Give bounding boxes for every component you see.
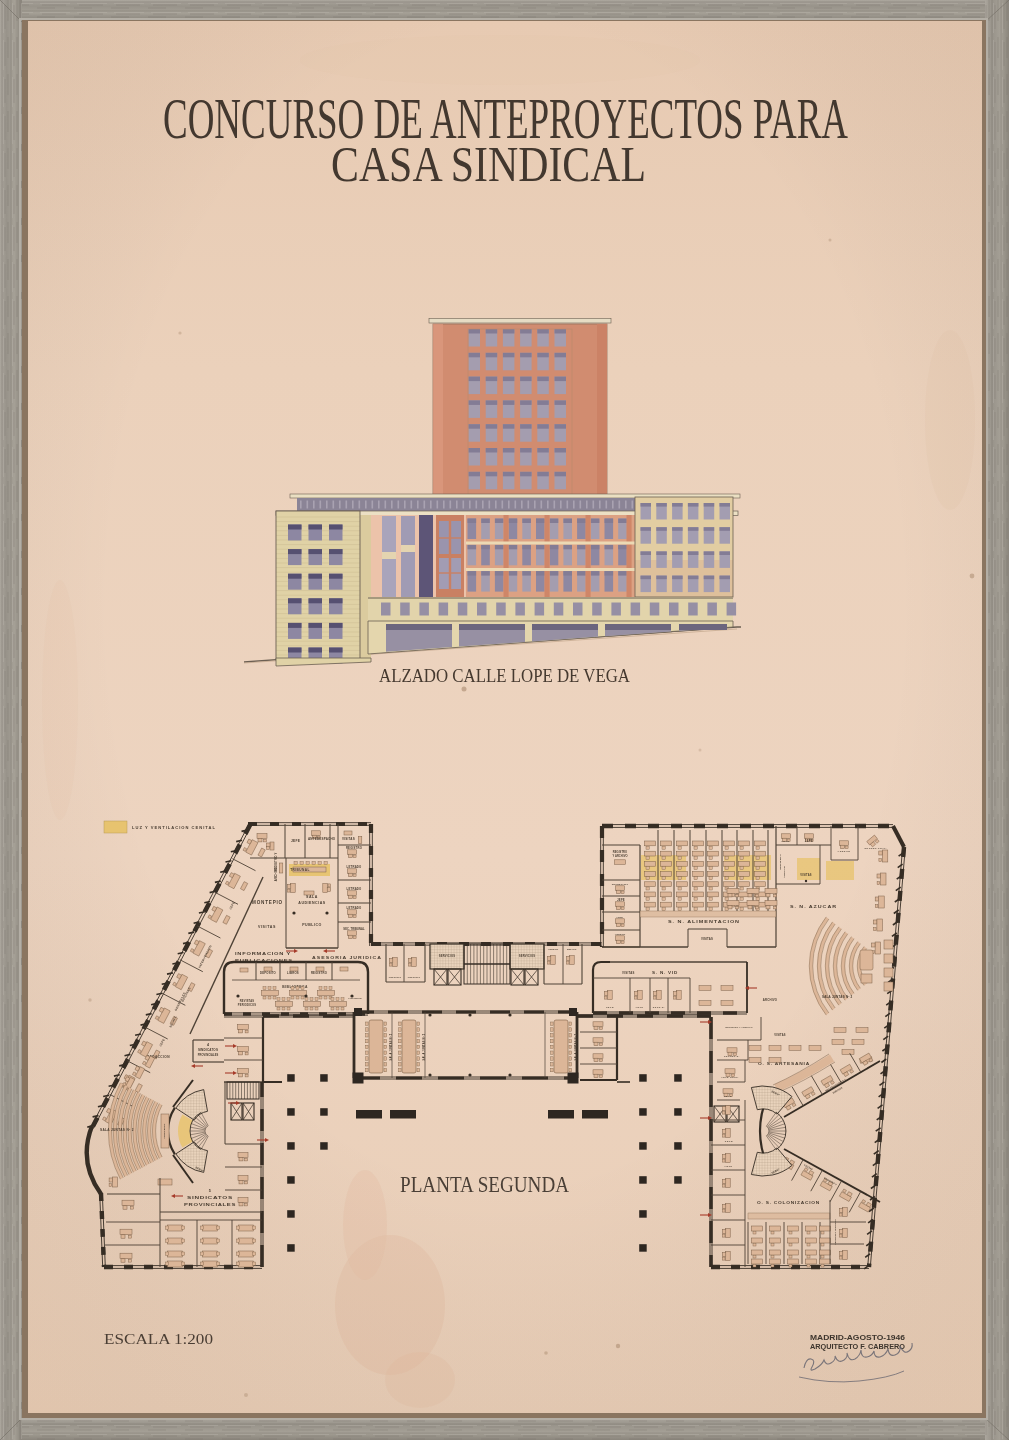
svg-text:AUDIENCIAS: AUDIENCIAS: [298, 901, 325, 905]
svg-text:LETRADO: LETRADO: [389, 976, 401, 979]
svg-text:ARCHIVO: ARCHIVO: [783, 866, 786, 878]
svg-text:4: 4: [207, 1043, 209, 1047]
svg-text:ANTE-: ANTE-: [635, 1006, 644, 1008]
svg-text:LETRADO: LETRADO: [408, 976, 420, 979]
svg-text:JEFE: JEFE: [725, 1140, 733, 1143]
svg-text:ANTE-: ANTE-: [724, 1165, 734, 1167]
svg-text:PLANTA SEGUNDA: PLANTA SEGUNDA: [400, 1172, 569, 1197]
svg-text:LETRADO: LETRADO: [347, 906, 363, 910]
svg-text:REGISTRO Y ARCHIVO: REGISTRO Y ARCHIVO: [725, 1026, 752, 1028]
svg-text:MADRID-AGOSTO-1946: MADRID-AGOSTO-1946: [810, 1334, 905, 1341]
svg-text:SECR.D.: SECR.D.: [653, 1006, 665, 1008]
svg-text:ANTEDESPACHO: ANTEDESPACHO: [308, 837, 336, 841]
svg-text:SERVICIOS TECNICOS: SERVICIOS TECNICOS: [834, 1219, 836, 1245]
svg-text:PUBLICO: PUBLICO: [302, 923, 322, 927]
svg-text:REGISTRO: REGISTRO: [346, 846, 363, 850]
svg-text:S. N. ALIMENTACION: S. N. ALIMENTACION: [668, 919, 740, 924]
svg-text:FICHEROS: FICHEROS: [348, 997, 361, 1000]
svg-text:Y ARCHIVO: Y ARCHIVO: [612, 854, 627, 858]
svg-text:LIBROS: LIBROS: [287, 971, 299, 975]
svg-text:ESCALA 1:200: ESCALA 1:200: [104, 1331, 213, 1347]
svg-text:INFORMACION Y: INFORMACION Y: [235, 952, 291, 956]
svg-text:SECRETARIO: SECRETARIO: [612, 883, 629, 886]
svg-text:VISITAS: VISITAS: [258, 925, 276, 929]
svg-text:S. N. AZUCAR: S. N. AZUCAR: [790, 904, 837, 909]
svg-text:REGISTRO: REGISTRO: [613, 850, 627, 854]
svg-text:LETRADO: LETRADO: [347, 865, 363, 869]
svg-text:ASESORIA JURIDICA: ASESORIA JURIDICA: [312, 955, 382, 960]
svg-text:ASESOR: ASESOR: [615, 933, 626, 936]
svg-text:REVISTAS: REVISTAS: [240, 999, 254, 1003]
svg-text:SALA JUNTAS Nº 3: SALA JUNTAS Nº 3: [422, 1033, 426, 1060]
svg-text:SALA JUNTAS Nº 2: SALA JUNTAS Nº 2: [100, 1128, 134, 1132]
svg-text:VISITAS: VISITAS: [701, 937, 713, 941]
svg-text:ARCHIVO: ARCHIVO: [763, 998, 778, 1002]
svg-text:5: 5: [209, 1189, 211, 1193]
svg-text:SALA JUNTAS Nº 3: SALA JUNTAS Nº 3: [574, 1033, 578, 1060]
svg-text:SECRET.D.: SECRET.D.: [724, 1055, 740, 1057]
svg-text:SALA JUNTAS Nº 2: SALA JUNTAS Nº 2: [822, 995, 853, 999]
svg-text:REGISTRO Y: REGISTRO Y: [779, 854, 782, 870]
svg-text:ANTE-: ANTE-: [781, 840, 791, 843]
svg-text:S. N. VID: S. N. VID: [652, 971, 678, 975]
svg-text:ANTE-DESP.: ANTE-DESP.: [721, 1076, 739, 1078]
svg-text:ARCHIVO: ARCHIVO: [274, 866, 278, 881]
svg-text:MONTEPIO: MONTEPIO: [252, 900, 283, 905]
svg-text:SALA: SALA: [306, 895, 318, 899]
svg-text:VISITAS: VISITAS: [774, 1033, 785, 1037]
svg-text:ANTE-: ANTE-: [616, 916, 624, 919]
svg-text:O. S. COLONIZACION: O. S. COLONIZACION: [757, 1201, 820, 1205]
svg-text:REGISTRO: REGISTRO: [311, 971, 328, 975]
svg-text:LETRADO: LETRADO: [347, 887, 363, 891]
svg-text:SALA JUNTAS Nº 3: SALA JUNTAS Nº 3: [389, 1033, 393, 1060]
svg-text:SINDICATOS: SINDICATOS: [198, 1048, 218, 1052]
svg-text:LUZ Y VENTILACION CENITAL: LUZ Y VENTILACION CENITAL: [132, 825, 216, 830]
svg-text:BELIGT.: BELIGT.: [567, 948, 577, 951]
svg-text:SERVICIOS: SERVICIOS: [439, 954, 455, 958]
svg-text:PROVINCIALES: PROVINCIALES: [198, 1053, 219, 1057]
svg-text:SEC. TRIBUNAL: SEC. TRIBUNAL: [343, 927, 365, 931]
svg-text:PROVINCIALES: PROVINCIALES: [184, 1203, 236, 1207]
svg-text:VISITAS: VISITAS: [342, 837, 355, 841]
svg-text:JEFE: JEFE: [617, 898, 625, 902]
svg-text:PERIODICOS: PERIODICOS: [238, 1003, 256, 1007]
svg-text:ASESOR: ASESOR: [548, 948, 559, 951]
svg-text:JEFE: JEFE: [805, 839, 814, 843]
svg-text:SERVICIOS: SERVICIOS: [519, 954, 535, 958]
svg-text:ARQUITECTO F. CABRERO: ARQUITECTO F. CABRERO: [810, 1343, 906, 1351]
svg-text:TRIBUNAL: TRIBUNAL: [290, 868, 310, 872]
svg-text:JEFE: JEFE: [606, 1006, 614, 1009]
svg-text:ASESOR: ASESOR: [837, 850, 850, 853]
svg-text:DEPOSITO: DEPOSITO: [260, 971, 277, 975]
svg-text:SINDICATOS: SINDICATOS: [187, 1196, 233, 1200]
svg-text:VISITAS: VISITAS: [800, 873, 811, 877]
svg-text:O. S. ARTESANIA: O. S. ARTESANIA: [758, 1062, 810, 1066]
svg-text:JEFE: JEFE: [724, 1095, 732, 1098]
svg-text:VISITAS: VISITAS: [622, 971, 635, 975]
svg-text:PRESIDENCIA: PRESIDENCIA: [163, 1123, 165, 1138]
svg-text:CASA SINDICAL: CASA SINDICAL: [331, 136, 646, 192]
svg-text:ALZADO CALLE LOPE DE VEGA: ALZADO CALLE LOPE DE VEGA: [379, 665, 630, 686]
svg-text:SECRET.GRAL.: SECRET.GRAL.: [865, 847, 888, 849]
svg-text:JEFE: JEFE: [291, 839, 300, 843]
